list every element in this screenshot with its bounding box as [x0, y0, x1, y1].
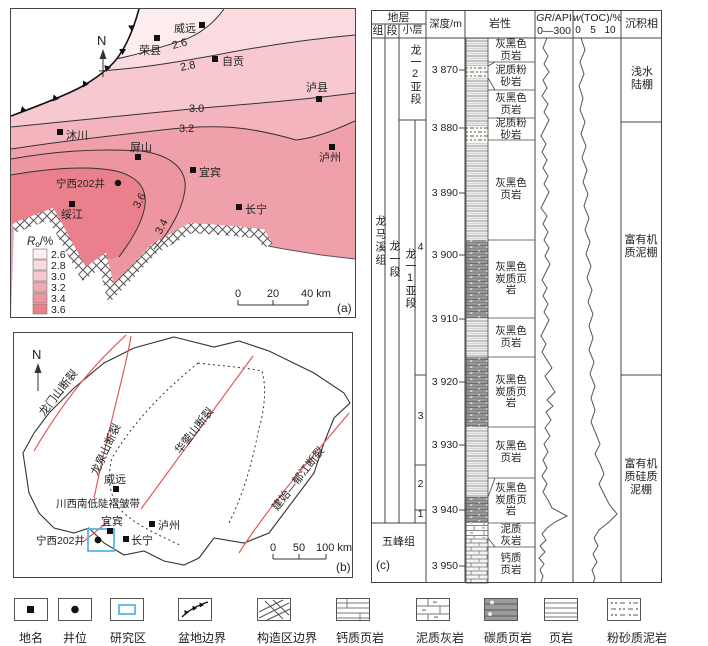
silty-mudstone-symbol-icon: [607, 598, 641, 621]
depth-ticks: [459, 70, 465, 566]
legend-study-area-label: 研究区: [110, 629, 144, 646]
facies-organic-mud-shelf: 富有机质泥棚: [622, 234, 660, 260]
depth-3910: 3 910: [417, 313, 458, 325]
legend-place-name: 地名: [14, 598, 48, 646]
legend-row: 地名 井位 研究区 盆地边界 构造区边界: [0, 596, 708, 643]
legend-well-label: 井位: [58, 629, 92, 646]
toc-tick-10: 10: [603, 25, 617, 37]
header-gr-rest: /API: [552, 12, 572, 24]
ro-swatch-28: [33, 260, 47, 270]
fault-labels: 龙门山断裂 龙泉山断裂 华蓥山断裂 建始—郁江断裂: [35, 367, 327, 514]
depth-3940: 3 940: [417, 504, 458, 516]
ro-value-36: 3.6: [51, 304, 66, 316]
depth-3870: 3 870: [417, 64, 458, 76]
panel-b-cities: 威远 宜宾 泸州 长宁 宁西202井: [36, 473, 180, 547]
city-luzhou-b: 泸州: [158, 519, 180, 532]
scale-b-50: 50: [293, 542, 305, 554]
header-gr: GR/API: [535, 12, 573, 24]
gr-curve: [539, 38, 567, 582]
depth-3880: 3 880: [417, 122, 458, 134]
group-wufeng: 五峰组: [371, 533, 426, 549]
ro-swatch-36: [33, 304, 47, 314]
lith-label-6: 灰黑色炭质页岩: [493, 262, 529, 297]
lith-label-5: 灰黑色页岩: [493, 178, 529, 201]
depth-3930: 3 930: [417, 439, 458, 451]
scale-a-20: 20: [267, 288, 279, 300]
header-lithology: 岩性: [465, 18, 535, 30]
scale-a-0: 0: [235, 288, 241, 300]
sublayer-3: 3: [415, 410, 426, 422]
shale-symbol-icon: [544, 598, 578, 621]
panel-b-structural-map: 龙门山断裂 龙泉山断裂 华蓥山断裂 建始—郁江断裂 川西南低陡褶皱带 威远 宜宾…: [13, 332, 353, 578]
sublayer-2: 2: [415, 478, 426, 490]
legend-tectonic-boundary: 构造区边界: [257, 598, 291, 646]
fault-jianshi-yujiang: 建始—郁江断裂: [269, 444, 327, 513]
city-changning-a: 长宁: [245, 202, 267, 216]
header-depth: 深度/m: [426, 18, 465, 30]
legend-carbonaceous-shale-label: 碳质页岩: [484, 629, 518, 646]
ro-legend-title-r: R: [27, 236, 35, 248]
lith-label-2: 泥质粉砂岩: [493, 65, 529, 88]
lith-label-10: 灰黑色炭质页岩: [493, 483, 529, 518]
header-toc-rest: (TOC)/%: [581, 12, 622, 24]
ro-swatch-30: [33, 271, 47, 281]
north-label-b: N: [32, 347, 41, 362]
scale-bar-b: 0 50 100 km: [270, 542, 352, 559]
scale-a-40km: 40 km: [301, 288, 331, 300]
city-yibin-b: 宜宾: [101, 514, 123, 528]
scale-b-100km: 100 km: [316, 542, 352, 554]
depth-3900: 3 900: [417, 249, 458, 261]
lith-label-9: 灰黑色页岩: [493, 441, 529, 464]
city-pingshan-a: 屏山: [130, 141, 152, 154]
header-gr-range: 0—300: [535, 25, 573, 37]
panel-b-svg: 龙门山断裂 龙泉山断裂 华蓥山断裂 建始—郁江断裂 川西南低陡褶皱带 威远 宜宾…: [14, 333, 352, 577]
header-member-col: 段: [385, 25, 399, 37]
fold-belt-label: 川西南低陡褶皱带: [56, 497, 140, 510]
ro-swatch-26: [33, 249, 47, 259]
city-rongxian-a: 荣县: [139, 44, 161, 57]
north-arrow-b: N: [32, 347, 42, 391]
header-facies: 沉积相: [621, 18, 662, 30]
lithology-strip: [466, 38, 488, 583]
north-label-a: N: [97, 33, 106, 48]
header-sublayer-col: 小层: [399, 25, 426, 37]
legend-well: 井位: [58, 598, 92, 646]
study-area-symbol-icon: [110, 598, 144, 621]
ro-legend-title-unit: /%: [40, 236, 53, 248]
city-suijiang-a: 绥江: [61, 208, 83, 221]
group-longmaxi: 龙马溪组: [372, 215, 385, 380]
toc-tick-0: 0: [573, 25, 583, 37]
header-toc: w(TOC)/%: [573, 12, 621, 24]
city-changning-b: 长宁: [131, 533, 153, 547]
lith-label-8: 灰黑色炭质页岩: [493, 375, 529, 410]
legend-carbonaceous-shale: 碳质页岩: [484, 598, 518, 646]
lith-label-7: 灰黑色页岩: [493, 326, 529, 349]
ro-swatch-32: [33, 282, 47, 292]
legend-basin-boundary-label: 盆地边界: [178, 629, 212, 646]
city-weiyuan-a: 威远: [174, 22, 196, 35]
city-muchuan-a: 沐川: [66, 129, 88, 142]
depth-3950: 3 950: [417, 560, 458, 572]
header-gr-italic: GR: [536, 12, 552, 24]
fault-huayingshan: 华蓥山断裂: [171, 405, 216, 457]
carbonaceous-shale-symbol-icon: [484, 598, 518, 621]
place-name-symbol-icon: [14, 598, 48, 621]
depth-3890: 3 890: [417, 187, 458, 199]
toc-curve: [579, 38, 617, 583]
argillaceous-limestone-symbol-icon: [416, 598, 450, 621]
member-longyi: 龙一段: [386, 240, 399, 330]
ro-legend-title: Ro/%: [27, 236, 53, 249]
scale-b-0: 0: [270, 542, 276, 554]
header-toc-italic: w: [573, 12, 581, 24]
legend-silty-mudstone: 粉砂质泥岩: [607, 598, 641, 646]
legend-shale-label: 页岩: [544, 629, 578, 646]
panel-b-label: (b): [336, 560, 351, 574]
facies-shallow-shelf: 浅水陆棚: [629, 66, 655, 92]
ro-swatch-34: [33, 293, 47, 303]
lith-label-1: 灰黑色页岩: [493, 39, 529, 62]
tectonic-boundary-symbol-icon: [257, 598, 291, 621]
contour-label-3-0: 3.0: [189, 103, 204, 115]
panel-a-svg: 2.6 2.8 3.0 3.2 3.6 3.4 N 威远 荣县 自贡 泸县 沐川…: [11, 9, 355, 317]
calcareous-shale-symbol-icon: [336, 598, 370, 621]
legend-shale: 页岩: [544, 598, 578, 646]
legend-calcareous-shale-label: 钙质页岩: [336, 629, 370, 646]
header-stratum: 地层: [371, 12, 426, 24]
lith-label-3: 灰黑色页岩: [493, 93, 529, 116]
well-ningxi202-b: 宁西202井: [36, 534, 85, 547]
legend-argillaceous-limestone-label: 泥质灰岩: [416, 629, 450, 646]
basin-boundary-symbol-icon: [178, 598, 212, 621]
tectonic-internal-boundaries: [109, 363, 264, 546]
panel-c-strat-column: 地层 组 段 小层 深度/m 岩性 GR/API 0—300 w(TOC)/% …: [371, 10, 662, 585]
lith-label-11: 泥质灰岩: [499, 524, 523, 547]
legend-study-area: 研究区: [110, 598, 144, 646]
legend-basin-boundary: 盆地边界: [178, 598, 212, 646]
submember-longyi1: 龙一1亚段: [400, 248, 415, 363]
lith-label-12: 钙质页岩: [499, 553, 523, 576]
city-luzhou-a: 泸州: [319, 151, 341, 164]
facies-organic-siliceous-mud-shelf: 富有机质硅质泥棚: [622, 458, 660, 497]
submember-longyi2: 龙一2亚段: [404, 44, 420, 124]
legend-argillaceous-limestone: 泥质灰岩: [416, 598, 450, 646]
legend-tectonic-boundary-label: 构造区边界: [257, 629, 291, 646]
legend-place-name-label: 地名: [14, 629, 48, 646]
depth-3920: 3 920: [417, 376, 458, 388]
panel-c-label: (c): [376, 558, 390, 572]
header-group-col: 组: [371, 25, 385, 37]
panel-a-ro-contour-map: 2.6 2.8 3.0 3.2 3.6 3.4 N 威远 荣县 自贡 泸县 沐川…: [10, 8, 356, 318]
legend-calcareous-shale: 钙质页岩: [336, 598, 370, 646]
contour-label-3-2: 3.2: [179, 123, 194, 135]
lith-label-4: 泥质粉砂岩: [493, 118, 529, 141]
city-weiyuan-b: 威远: [104, 473, 126, 486]
well-symbol-icon: [58, 598, 92, 621]
panel-a-label: (a): [337, 301, 352, 315]
legend-silty-mudstone-label: 粉砂质泥岩: [607, 629, 641, 646]
city-yibin-a: 宜宾: [199, 165, 221, 179]
toc-tick-5: 5: [588, 25, 598, 37]
well-ningxi202-a: 宁西202井: [56, 177, 105, 190]
city-zigong-a: 自贡: [222, 55, 244, 68]
city-luxian-a: 泸县: [306, 81, 328, 94]
fault-longquanshan: 龙泉山断裂: [87, 421, 123, 477]
